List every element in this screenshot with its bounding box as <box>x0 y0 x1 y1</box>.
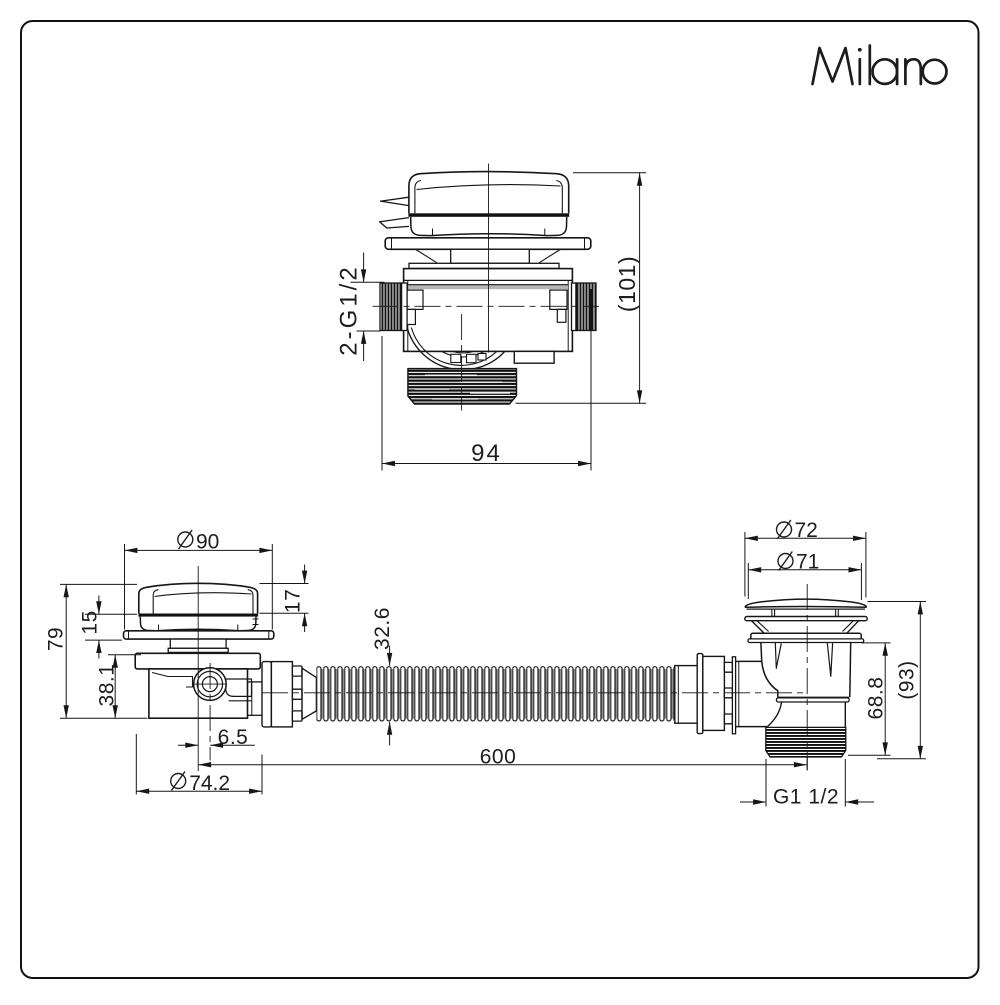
svg-text:38.1: 38.1 <box>96 664 119 707</box>
svg-text:(101): (101) <box>614 256 640 312</box>
svg-text:17: 17 <box>282 589 305 613</box>
svg-text:G1 1/2: G1 1/2 <box>773 786 839 809</box>
svg-text:71: 71 <box>796 550 819 573</box>
svg-text:94: 94 <box>471 440 502 467</box>
svg-text:600: 600 <box>480 745 517 768</box>
svg-text:74.2: 74.2 <box>189 772 230 795</box>
svg-text:79: 79 <box>45 627 68 651</box>
svg-text:32.6: 32.6 <box>371 607 394 650</box>
svg-text:15: 15 <box>79 610 102 634</box>
svg-text:90: 90 <box>196 531 219 554</box>
svg-text:(93): (93) <box>896 660 919 699</box>
svg-text:68.8: 68.8 <box>864 677 887 720</box>
svg-text:72: 72 <box>795 519 818 542</box>
svg-text:2-G1/2: 2-G1/2 <box>336 264 363 355</box>
svg-text:6.5: 6.5 <box>218 726 249 749</box>
